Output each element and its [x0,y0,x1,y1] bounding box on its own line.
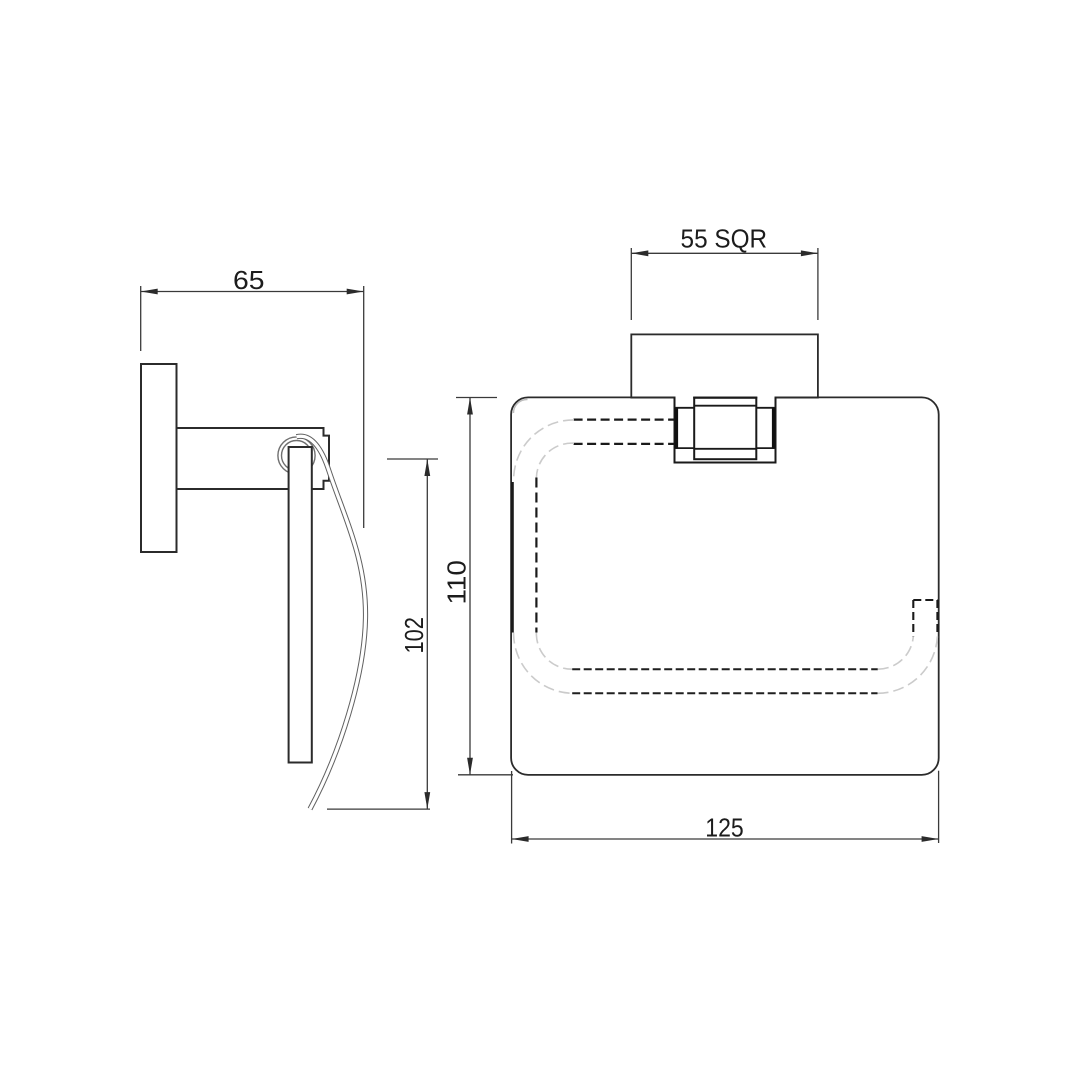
svg-text:125: 125 [705,813,744,843]
svg-text:55 SQR: 55 SQR [681,224,768,254]
svg-text:102: 102 [399,617,429,654]
svg-text:65: 65 [233,265,265,295]
svg-text:110: 110 [441,560,471,605]
